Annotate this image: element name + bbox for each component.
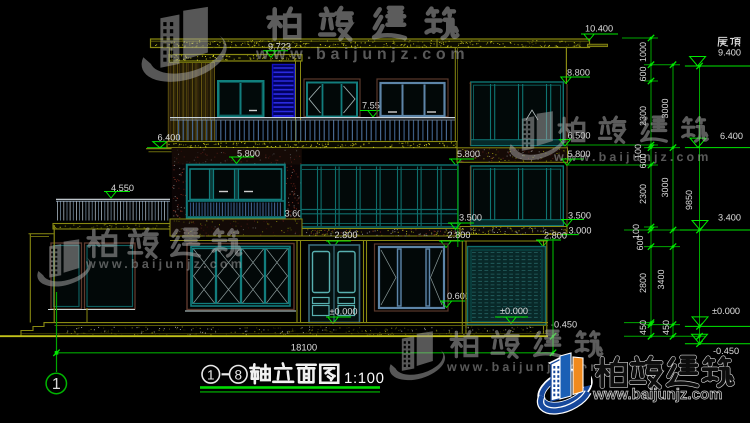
svg-text:8.800: 8.800 (567, 68, 590, 78)
svg-text:5.800: 5.800 (237, 149, 260, 159)
svg-text:±0.000: ±0.000 (330, 307, 358, 317)
svg-text:1: 1 (52, 376, 61, 393)
svg-text:2.800: 2.800 (448, 230, 471, 240)
svg-text:600: 600 (635, 235, 645, 250)
svg-text:www.baijunjz.com: www.baijunjz.com (85, 257, 245, 271)
svg-text:2.800: 2.800 (544, 231, 567, 241)
svg-text:2800: 2800 (638, 273, 648, 293)
svg-text:www.baijunjz.com: www.baijunjz.com (592, 386, 722, 403)
svg-text:450: 450 (661, 320, 671, 335)
svg-text:1:100: 1:100 (344, 370, 385, 387)
svg-text:9.400: 9.400 (718, 48, 741, 58)
svg-text:6.400: 6.400 (720, 131, 743, 141)
svg-text:1: 1 (207, 367, 215, 382)
svg-text:-0.450: -0.450 (713, 346, 739, 356)
svg-text:3.400: 3.400 (718, 213, 741, 223)
svg-text:2300: 2300 (638, 184, 648, 204)
svg-text:9850: 9850 (684, 190, 694, 210)
svg-text:2.800: 2.800 (335, 230, 358, 240)
svg-text:18100: 18100 (291, 343, 317, 354)
svg-text:3400: 3400 (656, 269, 666, 289)
svg-text:3.500: 3.500 (459, 213, 482, 223)
svg-text:±0.000: ±0.000 (500, 306, 528, 316)
svg-text:www.baijunjz.com: www.baijunjz.com (553, 150, 711, 164)
svg-text:450: 450 (638, 320, 648, 335)
svg-text:www.baijunjz.com: www.baijunjz.com (255, 46, 469, 63)
svg-text:10.400: 10.400 (585, 24, 613, 34)
svg-text:3.500: 3.500 (568, 211, 591, 221)
svg-text:±0.000: ±0.000 (712, 306, 740, 316)
svg-text:3.000: 3.000 (569, 226, 592, 236)
svg-text:600: 600 (638, 66, 648, 81)
svg-text:5.800: 5.800 (457, 149, 480, 159)
svg-text:8: 8 (235, 367, 243, 382)
svg-text:-0.450: -0.450 (551, 320, 577, 330)
svg-text:1000: 1000 (638, 42, 648, 62)
svg-text:4.550: 4.550 (111, 183, 134, 193)
svg-text:3000: 3000 (660, 177, 670, 197)
